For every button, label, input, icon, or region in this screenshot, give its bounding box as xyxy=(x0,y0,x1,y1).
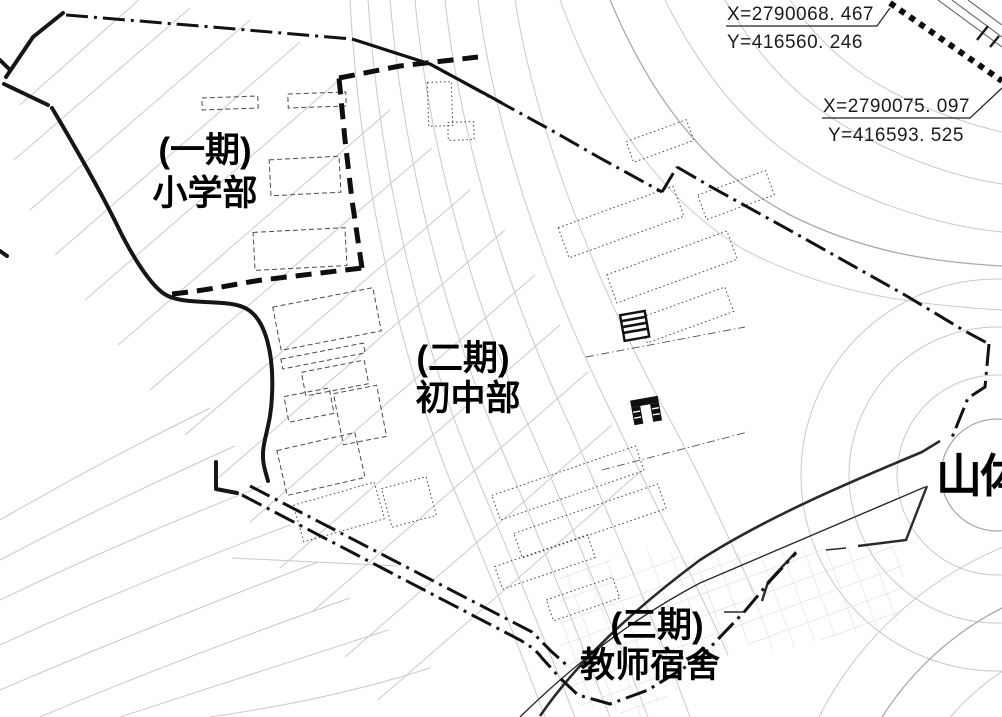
coordinate-x-value: X=2790075. 097 xyxy=(823,96,970,117)
phase1-line2: 小学部 xyxy=(152,173,257,213)
phase3-line2: 教师宿舍 xyxy=(580,645,720,685)
coordinate-callout-1: X=2790068. 467 Y=416560. 246 xyxy=(726,4,890,53)
phase2-label: (二期) 初中部 xyxy=(415,339,520,418)
phase1-line1: (一期) xyxy=(158,131,251,170)
road-edge-lines xyxy=(938,0,1002,47)
stair-icon xyxy=(620,311,649,341)
coordinate-y-value: Y=416593. 525 xyxy=(828,125,964,146)
coordinate-y-value: Y=416560. 246 xyxy=(727,32,863,53)
coordinate-x-value: X=2790068. 467 xyxy=(727,4,874,25)
terrain-label: 山体 xyxy=(936,450,1002,502)
planned-road-dotted-line xyxy=(890,3,1002,81)
site-plan-canvas: X=2790068. 467 Y=416560. 246 X=2790075. … xyxy=(0,0,1002,717)
phase2-line1: (二期) xyxy=(416,339,509,378)
stair-icon xyxy=(630,396,662,425)
west-road-line xyxy=(0,13,272,493)
phase3-line1: (三期) xyxy=(610,606,703,645)
coordinate-callout-2: X=2790075. 097 Y=416593. 525 xyxy=(822,88,1002,146)
phase2-line2: 初中部 xyxy=(415,379,520,418)
phase1-label: (一期) 小学部 xyxy=(152,131,257,213)
